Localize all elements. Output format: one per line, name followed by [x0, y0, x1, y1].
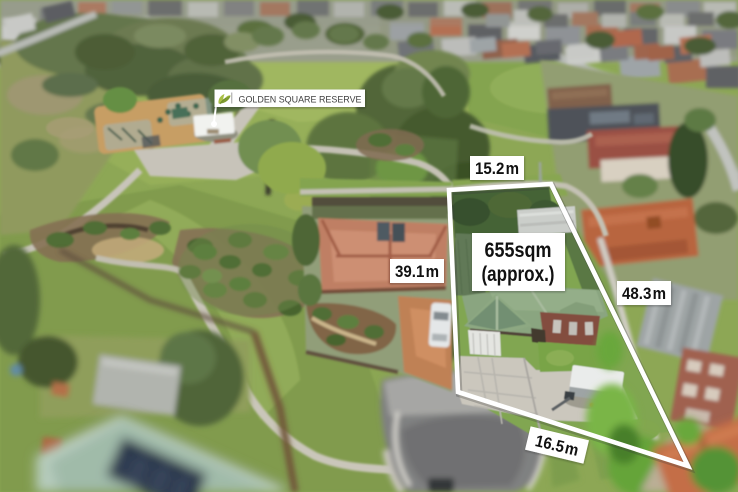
- svg-text:48.3 m: 48.3 m: [622, 285, 666, 303]
- svg-text:15.2 m: 15.2 m: [475, 160, 519, 178]
- svg-text:GOLDEN SQUARE RESERVE: GOLDEN SQUARE RESERVE: [239, 94, 362, 105]
- svg-text:39.1 m: 39.1 m: [395, 263, 439, 281]
- svg-text:655sqm: 655sqm: [485, 239, 552, 262]
- svg-text:(approx.): (approx.): [482, 263, 555, 286]
